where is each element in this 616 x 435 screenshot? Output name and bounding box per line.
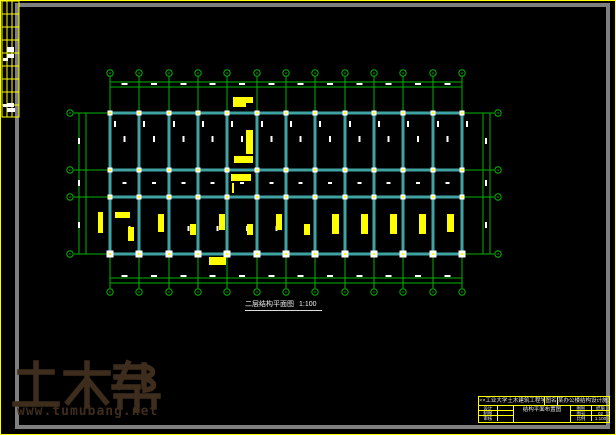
title-block-drawing-name: 结构平面布置图: [514, 406, 571, 422]
plan-title-text: 二层结构平面图: [245, 301, 294, 308]
watermark-url: www.tumubang.net: [17, 404, 158, 419]
cad-sheet: 二层结构平面图1:100 www.tumubang.net ××工业大学土木建筑…: [0, 0, 616, 435]
plan-title: 二层结构平面图1:100: [245, 301, 322, 311]
title-block: ××工业大学土木建筑工程学院 图名 某办公楼结构设计施工图 设计 制图 审核 结…: [478, 396, 610, 423]
title-block-meta: 图别 结施 图号 02 比例 1:100: [571, 406, 609, 422]
watermark-brand-strokes: [15, 363, 158, 410]
title-block-name-label: 图名: [545, 397, 558, 406]
meta-row: 比例 1:100: [571, 416, 609, 421]
title-block-organization: ××工业大学土木建筑工程学院: [479, 397, 545, 406]
signature-strip: [2, 1, 19, 117]
annotations: [98, 97, 454, 265]
title-block-signatures: 设计 制图 审核: [479, 406, 514, 422]
beam-label-dashes: [114, 121, 468, 231]
plan-title-scale: 1:100: [299, 301, 317, 308]
signature-row: 审核: [479, 416, 513, 421]
beams: [109, 112, 464, 256]
axis-bubbles: [67, 70, 501, 295]
title-block-project: 某办公楼结构设计施工图: [558, 397, 609, 406]
